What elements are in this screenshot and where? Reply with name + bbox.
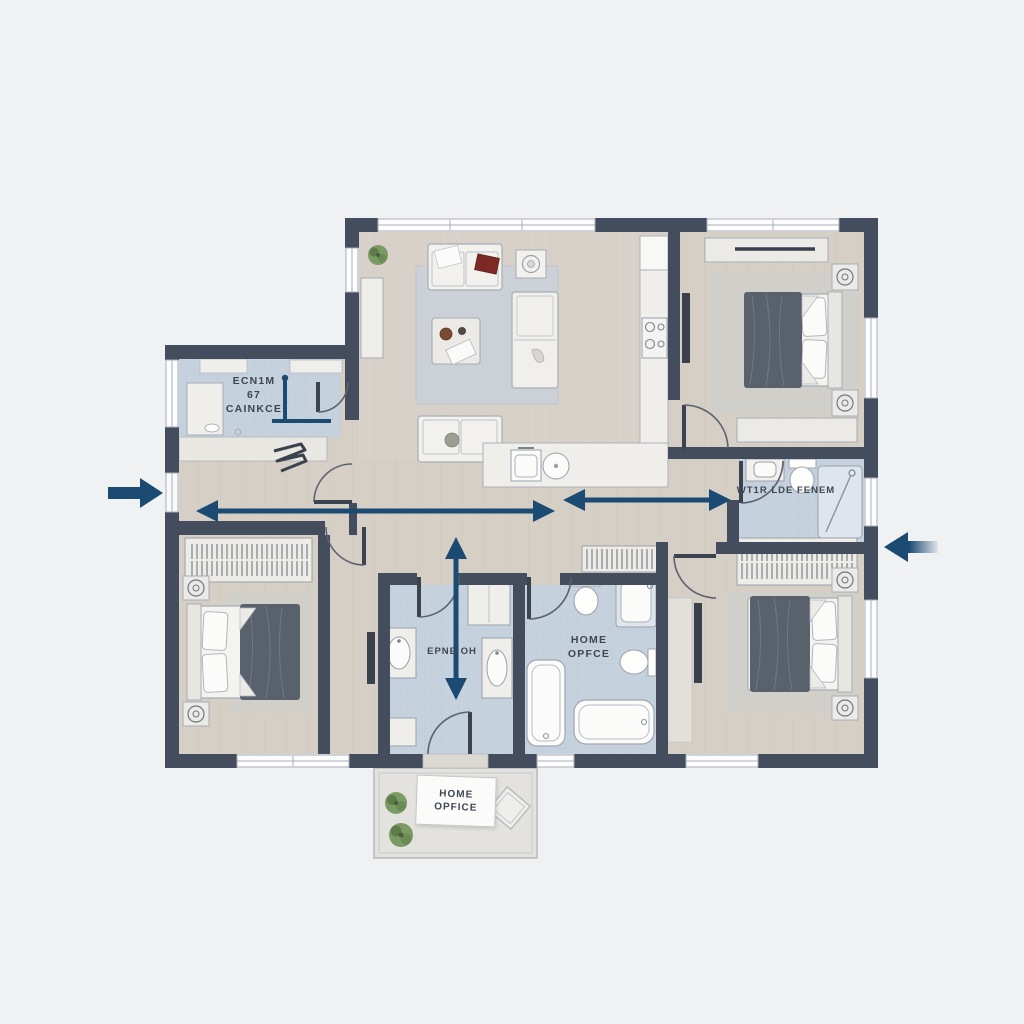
window bbox=[537, 755, 574, 767]
window bbox=[166, 360, 178, 427]
window bbox=[378, 219, 595, 231]
utility-room-label: ECN1M 67 CAINKCE bbox=[198, 374, 310, 416]
duvet bbox=[744, 292, 802, 388]
entry-door bbox=[166, 473, 178, 512]
nightstand-icon bbox=[183, 576, 209, 600]
dresser-icon bbox=[705, 238, 828, 262]
bathroom-label-line2: OPFCE bbox=[540, 647, 638, 661]
patio-sign-line2: OPFICE bbox=[434, 800, 478, 815]
center-bath-label: EPNE OH bbox=[404, 645, 500, 659]
window bbox=[707, 219, 839, 231]
window bbox=[686, 755, 758, 767]
window bbox=[865, 600, 877, 678]
side-table-lamp-icon bbox=[516, 250, 546, 278]
utility-room-label-line2: 67 bbox=[198, 388, 310, 402]
sideboard bbox=[361, 278, 383, 358]
sofa-icon bbox=[428, 244, 502, 290]
utility-room-label-line3: CAINKCE bbox=[198, 402, 310, 416]
nightstand-icon bbox=[832, 390, 858, 416]
hall-closet-rail bbox=[582, 546, 664, 572]
patio-sign-line1: HOME bbox=[439, 787, 473, 801]
plant-icon bbox=[385, 792, 407, 814]
window bbox=[865, 478, 877, 526]
tv-icon bbox=[694, 603, 702, 683]
floor-plan-drawing bbox=[0, 0, 1024, 1024]
nightstand-icon bbox=[832, 264, 858, 290]
window bbox=[237, 755, 349, 767]
fridge-icon bbox=[640, 236, 668, 270]
bathroom-label-line1: HOME bbox=[540, 633, 638, 647]
bedroom-bottom-left bbox=[183, 538, 312, 726]
bench bbox=[737, 418, 857, 442]
bathtub-icon bbox=[574, 700, 654, 744]
nightstand-icon bbox=[832, 568, 858, 592]
patio-doorway bbox=[423, 754, 488, 768]
kitchen-sink-icon bbox=[511, 448, 541, 481]
window bbox=[346, 248, 358, 292]
bathtub-icon bbox=[527, 660, 565, 746]
round-sink-icon bbox=[543, 453, 569, 479]
headboard bbox=[838, 596, 852, 692]
closet-rail bbox=[185, 538, 312, 582]
bed-icon bbox=[748, 596, 852, 692]
plant-icon bbox=[389, 823, 413, 847]
shelf-icon bbox=[367, 632, 375, 684]
wc-room-label: WT1R LDE FENEM bbox=[722, 484, 850, 498]
bed-icon bbox=[744, 292, 842, 388]
tv-icon bbox=[682, 293, 690, 363]
floor-plan: ECN1M 67 CAINKCE WT1R LDE FENEM EPNE OH … bbox=[0, 0, 1024, 1024]
sink-icon bbox=[746, 459, 784, 481]
shower-icon bbox=[818, 466, 862, 538]
utility-room-label-line1: ECN1M bbox=[198, 374, 310, 388]
stove-icon bbox=[642, 318, 667, 358]
headboard bbox=[828, 292, 842, 388]
patio-sign: HOME OPFICE bbox=[415, 775, 497, 828]
plant-icon bbox=[368, 245, 388, 265]
headboard bbox=[187, 604, 201, 700]
window bbox=[865, 318, 877, 398]
entry-arrow-right bbox=[884, 532, 938, 562]
nightstand-icon bbox=[183, 702, 209, 726]
coffee-table-icon bbox=[432, 318, 480, 365]
bathroom-label: HOME OPFCE bbox=[540, 633, 638, 661]
nightstand-icon bbox=[832, 696, 858, 720]
entry-arrow-left bbox=[108, 478, 163, 508]
bed-icon bbox=[187, 604, 300, 700]
armchair-icon bbox=[512, 292, 558, 388]
